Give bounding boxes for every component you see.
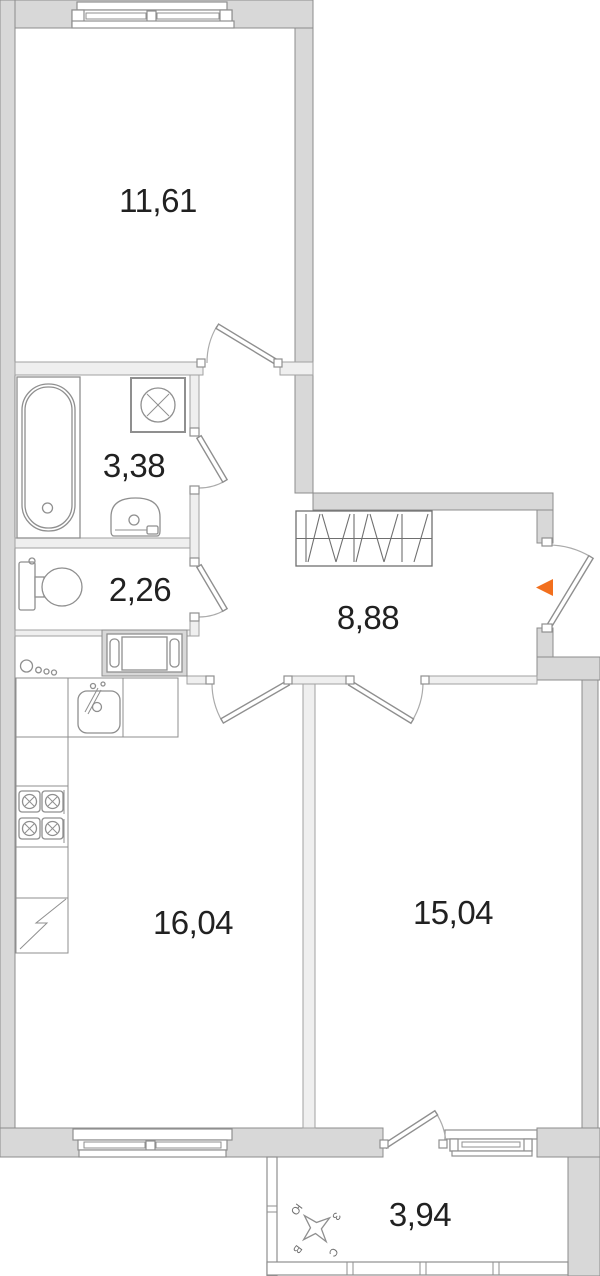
burner xyxy=(19,818,40,839)
compass-south: Ю xyxy=(288,1201,304,1217)
door-kitchen xyxy=(206,676,292,723)
room-label-balcony: 3,94 xyxy=(389,1196,451,1233)
door-bedroom-2 xyxy=(346,676,429,723)
room-label-hallway: 8,88 xyxy=(337,599,399,636)
burner xyxy=(42,818,63,839)
room-label-wc: 2,26 xyxy=(109,571,171,608)
partition-rooms xyxy=(303,684,315,1128)
balcony-glazing-bottom xyxy=(267,1262,568,1275)
door-wc xyxy=(190,558,227,621)
kitchen-appliance-dots xyxy=(21,660,57,675)
entrance-marker-icon xyxy=(536,579,553,596)
wall-bedroom-right xyxy=(295,28,313,493)
window-sill xyxy=(452,1151,532,1156)
wall-left xyxy=(0,0,15,1157)
kitchen-sink xyxy=(78,682,120,733)
vent-shaft xyxy=(102,630,187,676)
washing-machine xyxy=(131,378,185,432)
wall-outer-bottom-right xyxy=(568,1157,600,1276)
room-label-kitchen: 16,04 xyxy=(153,904,233,941)
window-sill xyxy=(72,21,234,28)
window-sill xyxy=(79,1150,226,1157)
window-balcony xyxy=(445,1130,537,1156)
soap-dish xyxy=(147,526,158,534)
wall-hallway-top xyxy=(313,493,553,510)
burner xyxy=(19,791,40,812)
bathroom-sink xyxy=(111,498,160,536)
wall-bath-wc-divider xyxy=(15,538,190,548)
wardrobe xyxy=(296,511,432,566)
door-bedroom xyxy=(197,324,282,367)
wall-bedroom-bottom xyxy=(15,362,203,375)
wall-bedroom-bottom-stub xyxy=(280,362,313,375)
toilet-tank xyxy=(19,562,35,610)
interior-walls xyxy=(15,362,537,1128)
window-mullion xyxy=(146,1141,155,1150)
floor-plan: Ю З В С 11,61 3,38 2,26 8,88 16,04 15,04… xyxy=(0,0,600,1276)
wall-bathroom-right-upper xyxy=(190,375,199,435)
balcony-glazing-left xyxy=(267,1157,277,1276)
toilet xyxy=(19,558,82,610)
wall-hallway-bottom-c xyxy=(425,676,537,684)
wall-bottom-right xyxy=(537,1128,600,1157)
door-bathroom xyxy=(190,428,227,494)
window-kitchen xyxy=(73,1129,232,1157)
compass-north: С xyxy=(326,1245,340,1259)
door-balcony xyxy=(380,1111,447,1148)
toilet-bowl xyxy=(42,568,82,606)
window-top xyxy=(72,2,234,28)
room-label-bedroom-2: 15,04 xyxy=(413,894,493,931)
wall-bathroom-right-lower xyxy=(190,488,199,566)
wall-bedroom2-right xyxy=(582,680,598,1130)
bathtub xyxy=(17,377,80,538)
wall-right-block xyxy=(537,657,600,680)
compass-west: З xyxy=(329,1210,343,1223)
room-label-bedroom: 11,61 xyxy=(119,182,197,219)
compass-east: В xyxy=(290,1242,304,1255)
burner xyxy=(42,791,63,812)
fridge-space xyxy=(16,898,68,953)
floor-plan-canvas: Ю З В С 11,61 3,38 2,26 8,88 16,04 15,04… xyxy=(0,0,600,1276)
stove xyxy=(16,786,68,847)
wall-hallway-bottom-b xyxy=(288,676,350,684)
room-label-bathroom: 3,38 xyxy=(103,447,165,484)
outer-walls xyxy=(0,0,600,1276)
compass-rose-icon: Ю З В С xyxy=(288,1201,343,1259)
